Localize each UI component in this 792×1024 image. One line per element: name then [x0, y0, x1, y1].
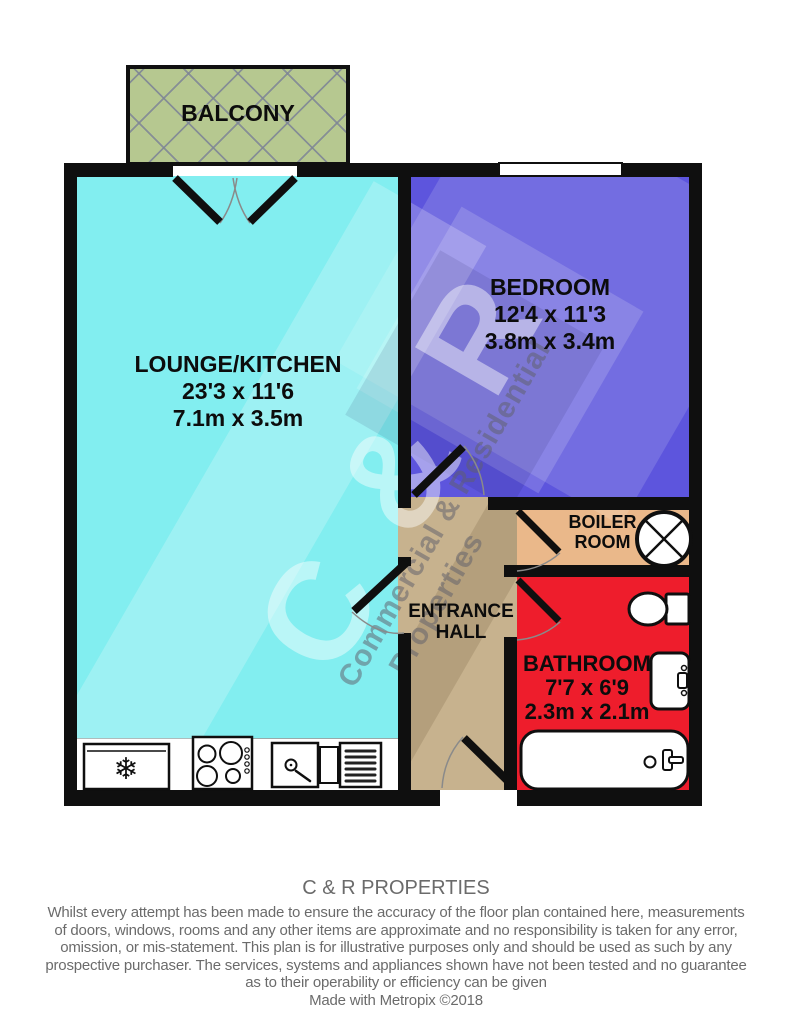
bathroom-label: BATHROOM 7'7 x 6'9 2.3m x 2.1m: [517, 652, 657, 724]
boiler-room-label-line1: BOILER: [540, 512, 665, 532]
bedroom-name: BEDROOM: [425, 274, 675, 301]
bathroom-dims-metric: 2.3m x 2.1m: [517, 700, 657, 724]
wall-bathroom-left: [504, 637, 517, 790]
wall-divider-upper: [398, 176, 411, 508]
lounge-dims-imperial: 23'3 x 11'6: [88, 378, 388, 405]
bedroom-dims-metric: 3.8m x 3.4m: [425, 328, 675, 355]
lounge-dims-metric: 7.1m x 3.5m: [88, 405, 388, 432]
footer: C & R PROPERTIES Whilst every attempt ha…: [0, 876, 792, 1009]
bathroom-dims-imperial: 7'7 x 6'9: [517, 676, 657, 700]
wall-divider-lower: [398, 633, 411, 790]
floor-plan: C & R Commercial & Residential Propertie…: [0, 0, 792, 1024]
entrance-hall-label: ENTRANCE HALL: [398, 601, 524, 643]
wall-boiler-bathroom: [504, 565, 689, 577]
boiler-room-label-line2: ROOM: [540, 532, 665, 552]
bathroom-name: BATHROOM: [517, 652, 657, 676]
disclaimer-line: of doors, windows, rooms and any other i…: [0, 922, 792, 940]
wall-divider-hinge: [398, 557, 411, 566]
wall-bottom-b: [517, 790, 702, 806]
entrance-hall-floor: [398, 497, 517, 790]
kitchen-counter: [77, 738, 398, 791]
lounge-floor: [77, 176, 398, 790]
bedroom-window: [498, 162, 623, 177]
wall-top-c: [623, 163, 689, 177]
wall-top-b: [297, 163, 498, 177]
wall-left: [64, 163, 77, 806]
wall-bedroom-bottom: [488, 497, 689, 510]
bedroom-label: BEDROOM 12'4 x 11'3 3.8m x 3.4m: [425, 274, 675, 355]
disclaimer-line: omission, or mis-statement. This plan is…: [0, 939, 792, 957]
boiler-room-label: BOILER ROOM: [540, 512, 665, 552]
disclaimer-line: Whilst every attempt has been made to en…: [0, 904, 792, 922]
disclaimer-line: prospective purchaser. The services, sys…: [0, 957, 792, 975]
footer-credit: Made with Metropix ©2018: [0, 992, 792, 1010]
wall-top-a: [64, 163, 173, 177]
lounge-name: LOUNGE/KITCHEN: [88, 351, 388, 378]
wall-right: [689, 163, 702, 806]
bedroom-dims-imperial: 12'4 x 11'3: [425, 301, 675, 328]
wall-bottom-a: [64, 790, 440, 806]
balcony-label: BALCONY: [126, 100, 350, 127]
footer-title: C & R PROPERTIES: [0, 876, 792, 900]
lounge-label: LOUNGE/KITCHEN 23'3 x 11'6 7.1m x 3.5m: [88, 351, 388, 432]
entrance-hall-label-line1: ENTRANCE: [398, 601, 524, 622]
disclaimer-line: as to their operability or efficiency ca…: [0, 974, 792, 992]
entrance-hall-label-line2: HALL: [398, 622, 524, 643]
